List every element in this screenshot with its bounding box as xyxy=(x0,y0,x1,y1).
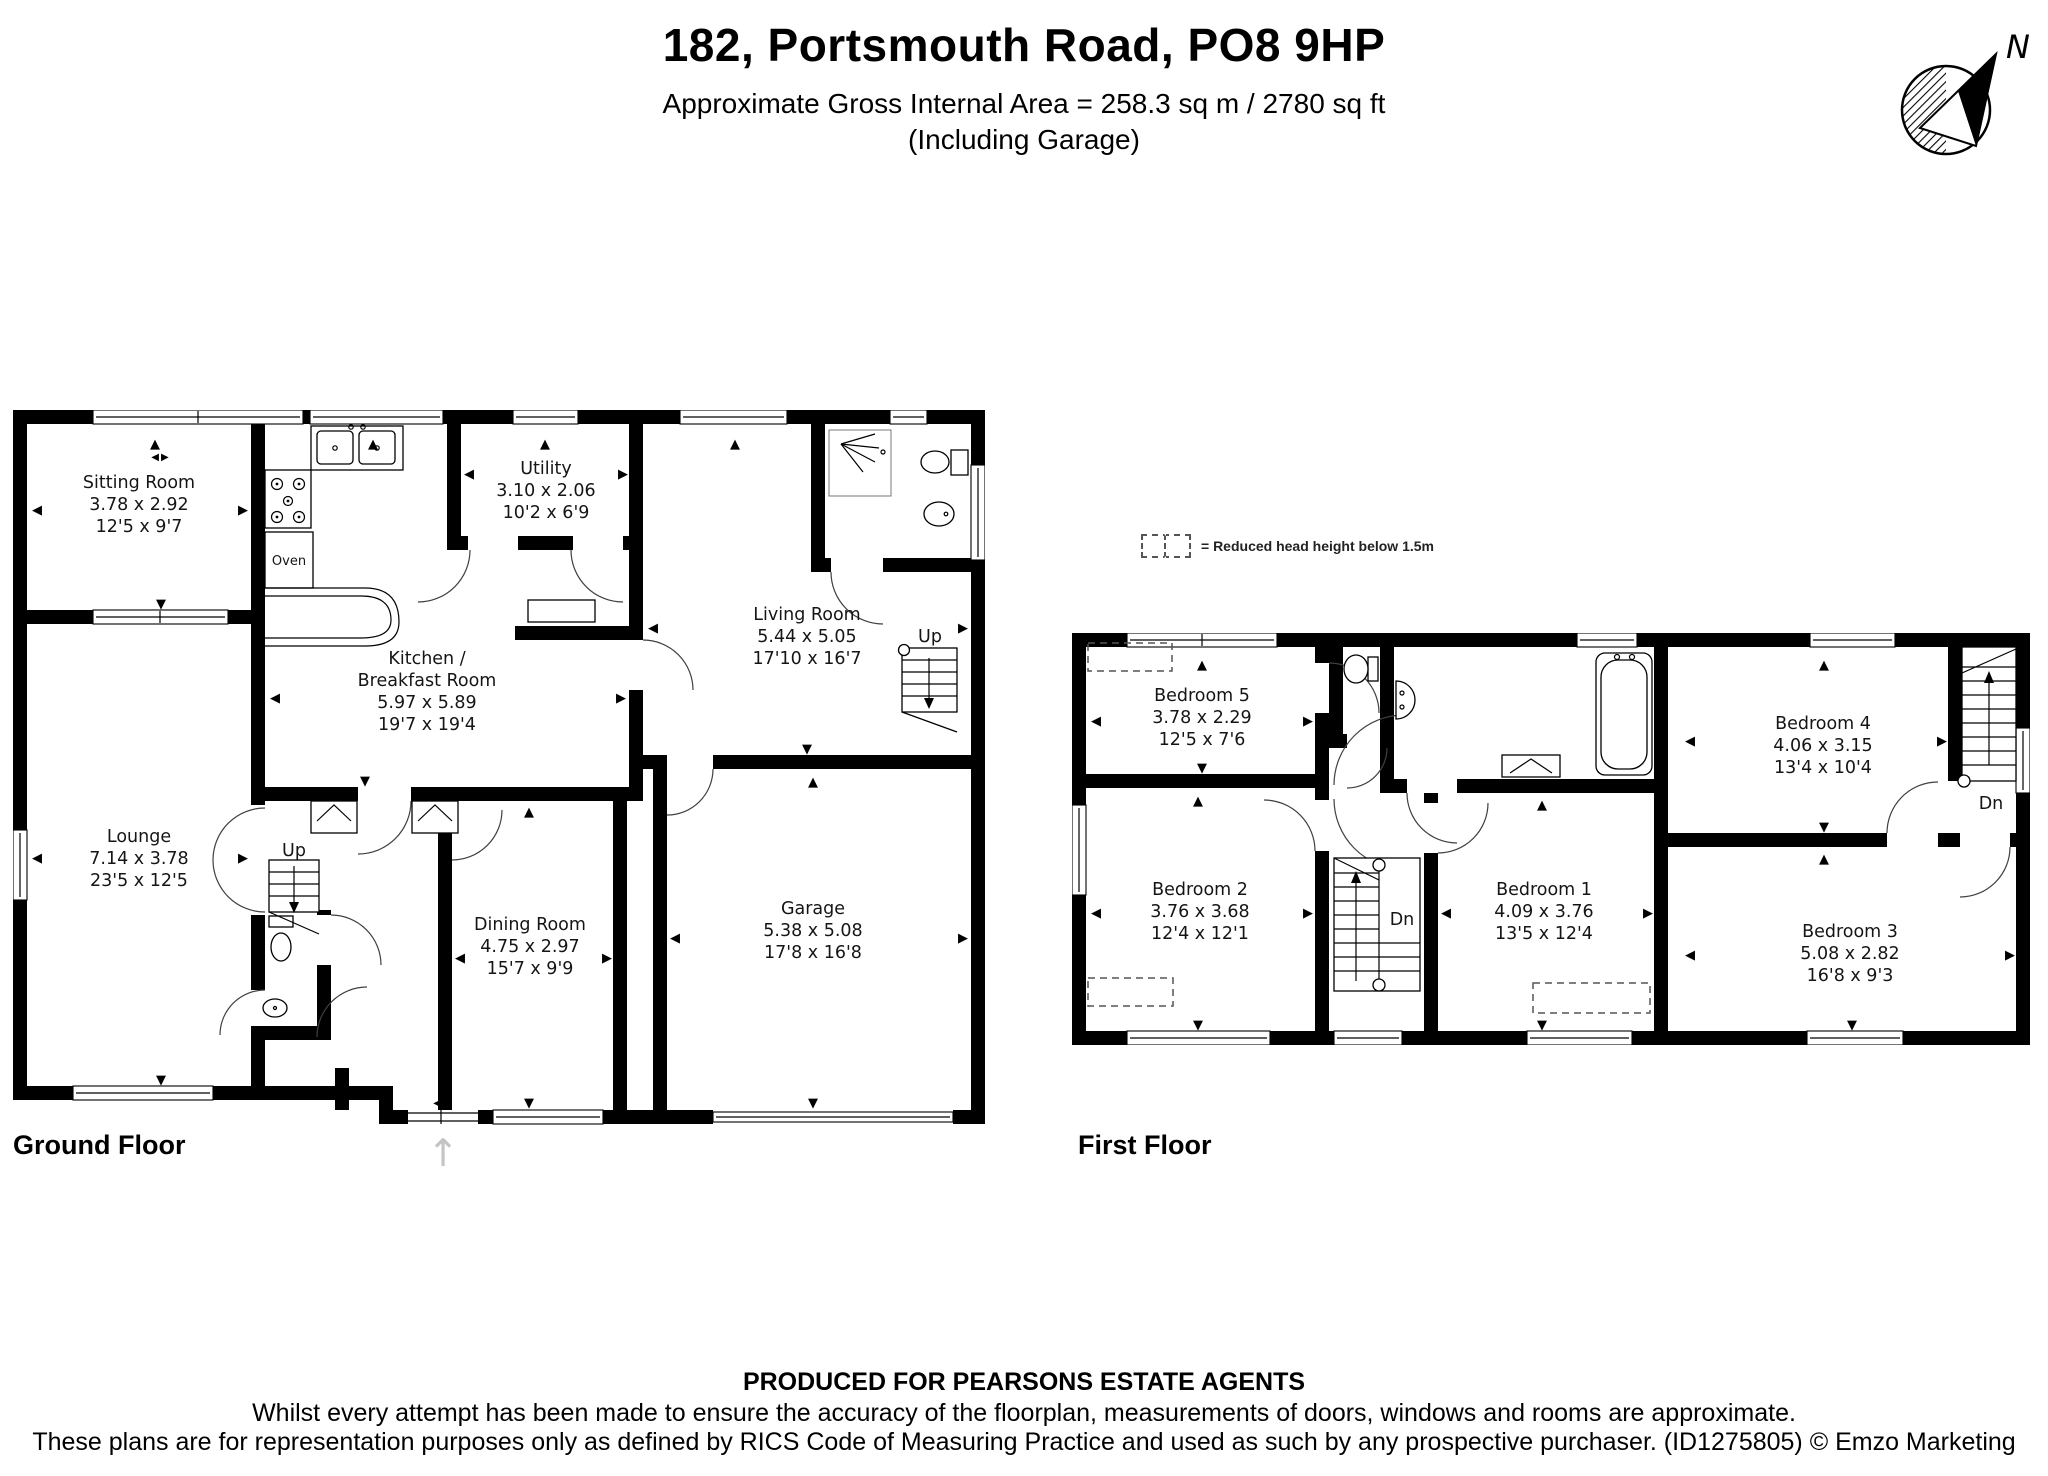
svg-text:▶: ▶ xyxy=(958,621,968,636)
kitchen-imperial: 19'7 x 19'4 xyxy=(378,715,476,735)
utility-imperial: 10'2 x 6'9 xyxy=(503,503,590,523)
bedroom3-metric: 5.08 x 2.82 xyxy=(1800,944,1899,964)
dining-room-metric: 4.75 x 2.97 xyxy=(480,937,579,957)
bedroom1-imperial: 13'5 x 12'4 xyxy=(1495,924,1593,944)
svg-text:▼: ▼ xyxy=(1847,1018,1857,1033)
lounge-name: Lounge xyxy=(107,827,171,847)
living-stairs-label: Up xyxy=(918,627,942,647)
oven-icon: Oven xyxy=(265,532,313,588)
cloakroom-toilet-icon xyxy=(269,916,293,961)
svg-text:▶: ▶ xyxy=(1303,906,1313,921)
entrance-arrow-icon: ↑ xyxy=(427,1131,459,1170)
hall-stairs-label: Up xyxy=(282,841,306,861)
svg-text:▲: ▲ xyxy=(808,775,818,790)
footer-produced-for: PRODUCED FOR PEARSONS ESTATE AGENTS xyxy=(0,1368,2048,1397)
utility-metric: 3.10 x 2.06 xyxy=(496,481,595,501)
reduced-head-height-swatch-icon xyxy=(1141,534,1191,558)
compass-north-icon: N xyxy=(1884,24,2048,176)
airing-cupboard-icon xyxy=(1502,755,1560,777)
svg-text:▶: ▶ xyxy=(618,467,628,482)
lounge-metric: 7.14 x 3.78 xyxy=(89,849,188,869)
svg-text:▼: ▼ xyxy=(156,597,166,612)
room-sitting: Sitting Room 3.78 x 2.92 12'5 x 9'7 xyxy=(83,473,195,537)
shower-room-basin-icon xyxy=(924,502,954,526)
right-staircase: Dn xyxy=(1958,647,2016,814)
svg-text:◀: ◀ xyxy=(1685,734,1695,749)
garage-name: Garage xyxy=(781,899,845,919)
living-room-metric: 5.44 x 5.05 xyxy=(757,627,856,647)
svg-text:◀: ◀ xyxy=(1441,906,1451,921)
svg-text:▼: ▼ xyxy=(156,1073,166,1088)
area-subtitle-2: (Including Garage) xyxy=(0,124,2048,156)
floorplan-document: 182, Portsmouth Road, PO8 9HP Approximat… xyxy=(0,0,2048,1476)
svg-text:▶: ▶ xyxy=(602,951,612,966)
svg-text:◀: ◀ xyxy=(1091,906,1101,921)
svg-text:◀: ◀ xyxy=(270,691,280,706)
svg-text:▼: ▼ xyxy=(808,1096,818,1111)
wc-toilet-icon xyxy=(1344,655,1378,683)
bathroom-basin-icon xyxy=(1396,681,1415,719)
cloakroom-basin-icon xyxy=(263,999,287,1017)
shower-room-toilet-icon xyxy=(921,450,968,475)
svg-text:▲: ▲ xyxy=(730,437,740,452)
svg-text:◀: ◀ xyxy=(670,931,680,946)
bedroom3-name: Bedroom 3 xyxy=(1802,922,1898,942)
sitting-room-metric: 3.78 x 2.92 xyxy=(89,495,188,515)
utility-radiator-icon xyxy=(528,600,595,622)
svg-text:▶: ▶ xyxy=(2005,948,2015,963)
compass-n-label: N xyxy=(2006,28,2030,66)
sitting-room-name: Sitting Room xyxy=(83,473,195,493)
svg-text:▶: ▶ xyxy=(238,851,248,866)
svg-text:▶: ▶ xyxy=(616,691,626,706)
room-bedroom1: Bedroom 1 4.09 x 3.76 13'5 x 12'4 xyxy=(1494,880,1593,944)
bedroom3-imperial: 16'8 x 9'3 xyxy=(1807,966,1894,986)
dining-room-imperial: 15'7 x 9'9 xyxy=(487,959,574,979)
svg-text:◀: ◀ xyxy=(32,503,42,518)
bedroom5-imperial: 12'5 x 7'6 xyxy=(1159,730,1246,750)
svg-text:▼: ▼ xyxy=(524,1096,534,1111)
kitchen-name-1: Kitchen / xyxy=(388,649,465,669)
svg-text:▲: ▲ xyxy=(1197,658,1207,673)
lounge-imperial: 23'5 x 12'5 xyxy=(90,871,188,891)
right-stairs-label: Dn xyxy=(1979,794,2004,814)
svg-text:▼: ▼ xyxy=(1197,761,1207,776)
svg-text:▶: ▶ xyxy=(1937,734,1947,749)
utility-name: Utility xyxy=(520,459,571,479)
svg-text:▲: ▲ xyxy=(1193,794,1203,809)
svg-text:▲: ▲ xyxy=(1537,798,1547,813)
room-kitchen: Kitchen / Breakfast Room 5.97 x 5.89 19'… xyxy=(358,649,497,735)
sitting-room-imperial: 12'5 x 9'7 xyxy=(96,517,183,537)
bedroom2-metric: 3.76 x 3.68 xyxy=(1150,902,1249,922)
garage-metric: 5.38 x 5.08 xyxy=(763,921,862,941)
bedroom2-imperial: 12'4 x 12'1 xyxy=(1151,924,1249,944)
svg-text:◀: ◀ xyxy=(1685,948,1695,963)
svg-text:▲: ▲ xyxy=(150,437,160,452)
legend-reduced-head-height: = Reduced head height below 1.5m xyxy=(1141,534,1434,558)
oven-label: Oven xyxy=(272,554,306,569)
svg-text:◀: ◀ xyxy=(1091,714,1101,729)
room-bedroom4: Bedroom 4 4.06 x 3.15 13'4 x 10'4 xyxy=(1773,714,1872,778)
ground-floor-dimension-arrows: ◀▶▲▼ ◀▶▼ ◀▶▲▼ ◀▶▲ ◀▶▲▼ ◀▶▲▼ ◀▶▲▼ xyxy=(32,437,968,1111)
svg-text:▼: ▼ xyxy=(1819,820,1829,835)
kitchen-counter-icon xyxy=(265,588,399,646)
room-dining: Dining Room 4.75 x 2.97 15'7 x 9'9 xyxy=(474,915,586,979)
svg-text:▲: ▲ xyxy=(540,437,550,452)
bedroom4-metric: 4.06 x 3.15 xyxy=(1773,736,1872,756)
footer-disclaimer-1: Whilst every attempt has been made to en… xyxy=(0,1399,2048,1428)
shower-icon xyxy=(829,430,891,496)
living-room-staircase: Up xyxy=(899,627,958,732)
room-garage: Garage 5.38 x 5.08 17'8 x 16'8 xyxy=(763,899,862,963)
kitchen-sink-icon xyxy=(311,425,403,470)
bathtub-icon xyxy=(1596,653,1652,775)
svg-text:◀: ◀ xyxy=(648,621,658,636)
svg-text:◀: ◀ xyxy=(464,467,474,482)
living-room-name: Living Room xyxy=(753,605,860,625)
bedroom4-name: Bedroom 4 xyxy=(1775,714,1871,734)
svg-text:▲: ▲ xyxy=(368,437,378,452)
svg-text:▶: ▶ xyxy=(1643,906,1653,921)
kitchen-metric: 5.97 x 5.89 xyxy=(377,693,476,713)
area-subtitle: Approximate Gross Internal Area = 258.3 … xyxy=(0,88,2048,120)
svg-text:▶: ▶ xyxy=(958,931,968,946)
svg-text:◀: ◀ xyxy=(455,951,465,966)
hob-icon xyxy=(265,470,311,528)
svg-text:▼: ▼ xyxy=(1537,1018,1547,1033)
hall-cupboards-icon xyxy=(311,801,458,833)
first-floor-plan: Dn Dn ◀▶▲▼ ◀▶▼▲ ◀▶▼▲ ◀▶▼▲ ◀▶▲▼ Bedroom 5… xyxy=(1072,633,2030,1045)
central-stairs-label: Dn xyxy=(1390,910,1415,930)
svg-text:◀: ◀ xyxy=(32,851,42,866)
svg-text:▶: ▶ xyxy=(238,503,248,518)
room-utility: Utility 3.10 x 2.06 10'2 x 6'9 xyxy=(496,459,595,523)
footer-disclaimer-2: These plans are for representation purpo… xyxy=(0,1428,2048,1457)
legend-label: = Reduced head height below 1.5m xyxy=(1201,538,1434,554)
bedroom5-metric: 3.78 x 2.29 xyxy=(1152,708,1251,728)
room-bedroom3: Bedroom 3 5.08 x 2.82 16'8 x 9'3 xyxy=(1800,922,1899,986)
central-staircase: Dn xyxy=(1334,858,1420,991)
svg-text:▼: ▼ xyxy=(802,742,812,757)
page-title: 182, Portsmouth Road, PO8 9HP xyxy=(0,18,2048,72)
svg-text:▶: ▶ xyxy=(1303,714,1313,729)
bedroom5-name: Bedroom 5 xyxy=(1154,686,1250,706)
svg-text:▼: ▼ xyxy=(1193,1018,1203,1033)
bedroom1-metric: 4.09 x 3.76 xyxy=(1494,902,1593,922)
bedroom4-imperial: 13'4 x 10'4 xyxy=(1774,758,1872,778)
front-door-slide-arrows-icon: ◀▶ xyxy=(433,1098,452,1109)
svg-text:▲: ▲ xyxy=(524,805,534,820)
bedroom2-name: Bedroom 2 xyxy=(1152,880,1248,900)
first-floor-label: First Floor xyxy=(1078,1130,1212,1161)
svg-text:▲: ▲ xyxy=(1819,658,1829,673)
room-living: Living Room 5.44 x 5.05 17'10 x 16'7 xyxy=(752,605,861,669)
svg-text:▲: ▲ xyxy=(1819,852,1829,867)
garage-imperial: 17'8 x 16'8 xyxy=(764,943,862,963)
bedroom1-name: Bedroom 1 xyxy=(1496,880,1592,900)
dining-room-name: Dining Room xyxy=(474,915,586,935)
room-bedroom2: Bedroom 2 3.76 x 3.68 12'4 x 12'1 xyxy=(1150,880,1249,944)
ground-floor-plan: Oven xyxy=(13,410,985,1170)
svg-text:▼: ▼ xyxy=(360,774,370,789)
sitting-window-slide-arrows-icon: ◀▶ xyxy=(151,452,170,463)
kitchen-name-2: Breakfast Room xyxy=(358,671,497,691)
room-bedroom5: Bedroom 5 3.78 x 2.29 12'5 x 7'6 xyxy=(1152,686,1251,750)
room-lounge: Lounge 7.14 x 3.78 23'5 x 12'5 xyxy=(89,827,188,891)
ground-floor-label: Ground Floor xyxy=(13,1130,185,1161)
living-room-imperial: 17'10 x 16'7 xyxy=(752,649,861,669)
